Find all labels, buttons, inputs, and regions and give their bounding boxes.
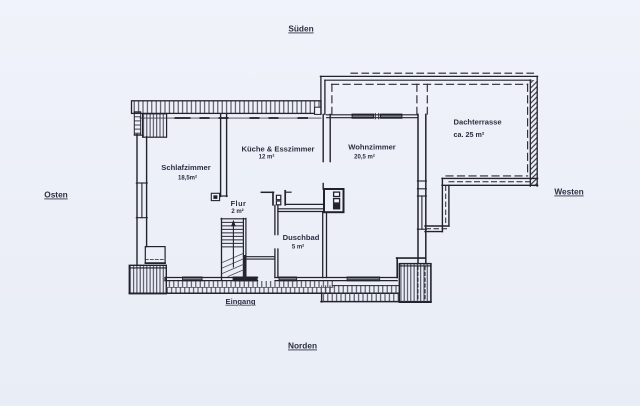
svg-text:Duschbad: Duschbad xyxy=(283,233,320,242)
svg-text:ca. 25 m²: ca. 25 m² xyxy=(454,130,485,139)
svg-text:5 m²: 5 m² xyxy=(292,244,304,251)
svg-text:Norden: Norden xyxy=(288,341,317,351)
svg-text:18,5m²: 18,5m² xyxy=(178,175,197,182)
svg-text:Osten: Osten xyxy=(44,190,68,200)
svg-text:Dachterrasse: Dachterrasse xyxy=(454,118,502,127)
svg-text:2 m²: 2 m² xyxy=(231,208,243,215)
svg-text:Süden: Süden xyxy=(288,24,313,34)
svg-text:Westen: Westen xyxy=(554,187,583,197)
svg-text:Wohnzimmer: Wohnzimmer xyxy=(348,143,396,152)
svg-text:12 m²: 12 m² xyxy=(259,154,275,161)
svg-text:Flur: Flur xyxy=(231,199,247,208)
svg-text:Eingang: Eingang xyxy=(226,297,256,306)
svg-text:20,5 m²: 20,5 m² xyxy=(354,154,375,161)
svg-text:Küche & Esszimmer: Küche & Esszimmer xyxy=(241,145,314,154)
svg-text:Schlafzimmer: Schlafzimmer xyxy=(161,163,210,172)
